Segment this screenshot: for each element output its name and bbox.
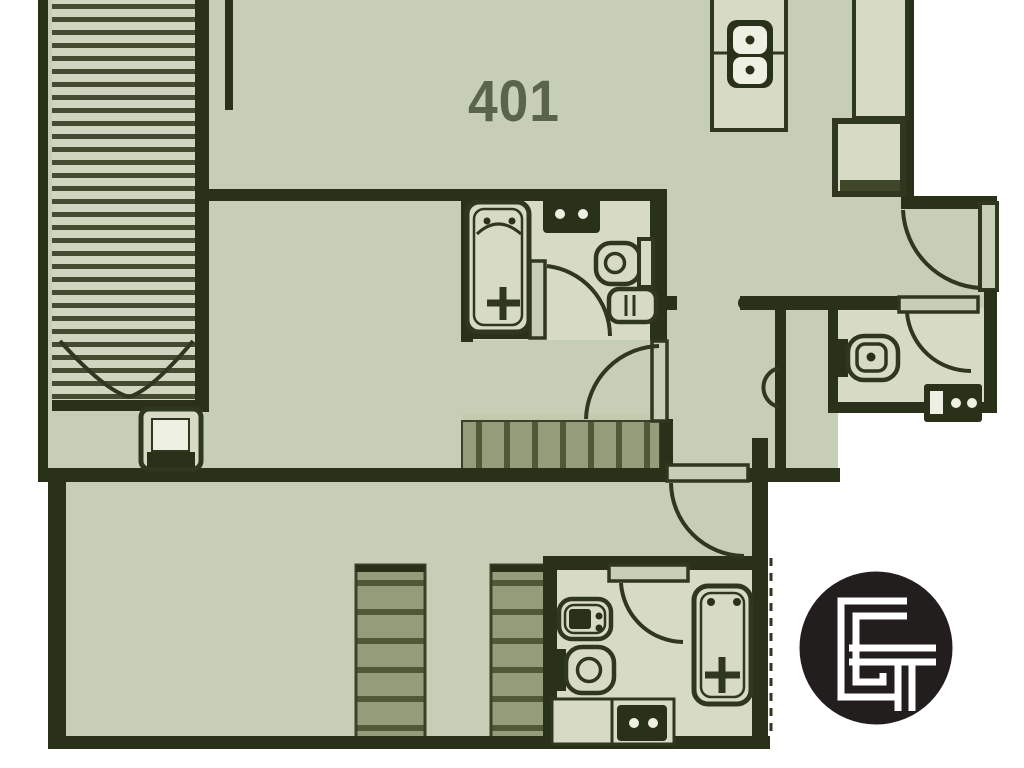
left-wall-upper — [38, 0, 48, 470]
bathtub-tap-2 — [509, 218, 516, 225]
kitchen-counter — [854, 0, 907, 118]
kitchen-island — [712, 0, 786, 130]
hall-door-leaf — [652, 341, 667, 421]
corridor-wall — [775, 308, 786, 482]
bidet-dot-1 — [596, 613, 603, 620]
lower-stairs-run-2 — [491, 565, 552, 738]
vanity-counter — [543, 197, 600, 233]
stair-top-edge — [491, 565, 552, 572]
refrigerator-icon — [835, 121, 903, 194]
vanity-dot-2 — [967, 398, 977, 408]
bidet-detail — [569, 609, 591, 629]
vanity-basin — [930, 391, 943, 414]
bathtub-tap-2 — [733, 598, 741, 606]
bathtub-icon — [694, 586, 751, 704]
exterior-side-stairs — [52, 0, 209, 412]
stair-top-edge — [356, 565, 425, 572]
toilet-tank — [639, 239, 653, 287]
refrigerator-shadow — [840, 180, 900, 191]
right-wall-lower — [752, 438, 768, 738]
bidet-icon — [559, 599, 611, 639]
toilet-icon — [837, 336, 898, 380]
vanity-dot-2 — [648, 718, 658, 728]
company-logo — [800, 572, 953, 725]
top-wall-stub — [225, 0, 233, 110]
bidet-dot-2 — [596, 625, 603, 632]
toilet-bowl — [596, 243, 640, 284]
vanity-dot-1 — [629, 718, 639, 728]
lower-stairs-run-1 — [356, 565, 425, 738]
bath-wall-cap — [664, 296, 677, 310]
burner-2-dot — [746, 66, 755, 75]
vanity-dot-1 — [555, 209, 565, 219]
bathtub-outer — [467, 202, 529, 332]
cooktop-icon — [727, 20, 773, 88]
vanity-sink-icon — [543, 197, 600, 233]
wall-end-cap — [738, 296, 752, 310]
stair-treads — [356, 565, 425, 738]
floorplan-canvas: 401 GT — [0, 0, 1024, 768]
stair-treads — [491, 565, 552, 738]
bathtub-tap-1 — [707, 598, 715, 606]
mid-level-stairs — [462, 414, 660, 472]
vanity-dot-2 — [578, 209, 588, 219]
tv-screen — [152, 419, 189, 451]
vanity-sink-icon — [924, 384, 982, 422]
bathtub-tap-1 — [484, 218, 491, 225]
burner-1-dot — [746, 36, 755, 45]
toilet-bowl — [566, 647, 614, 693]
vanity-sink-icon — [552, 699, 674, 744]
lower-bath-door-leaf — [609, 565, 688, 581]
tv-base — [147, 452, 195, 467]
bidet-icon — [609, 289, 656, 322]
unit-number-label: 401 — [468, 68, 560, 135]
tv-unit-icon — [141, 409, 201, 469]
left-wall-lower — [48, 470, 66, 738]
vanity-dot-1 — [951, 398, 961, 408]
bath-door-leaf — [530, 261, 545, 338]
stair-treads — [462, 421, 660, 472]
powder-right-wall — [984, 290, 997, 413]
corridor-top-wall — [740, 296, 900, 310]
toilet-icon — [555, 647, 614, 693]
powder-door-leaf — [899, 297, 978, 312]
entry-door-jamb — [980, 203, 997, 290]
toilet-drain-dot — [867, 353, 876, 362]
stair-right-stringer — [195, 0, 209, 412]
vanity-sink-basin — [617, 705, 667, 741]
hall-wall-stub — [660, 419, 673, 470]
lower-door-leaf — [667, 465, 748, 481]
stair-treads-strip — [52, 0, 195, 402]
toilet-icon — [596, 239, 653, 287]
powder-left-wall — [828, 310, 838, 402]
bathtub-icon — [467, 202, 529, 332]
